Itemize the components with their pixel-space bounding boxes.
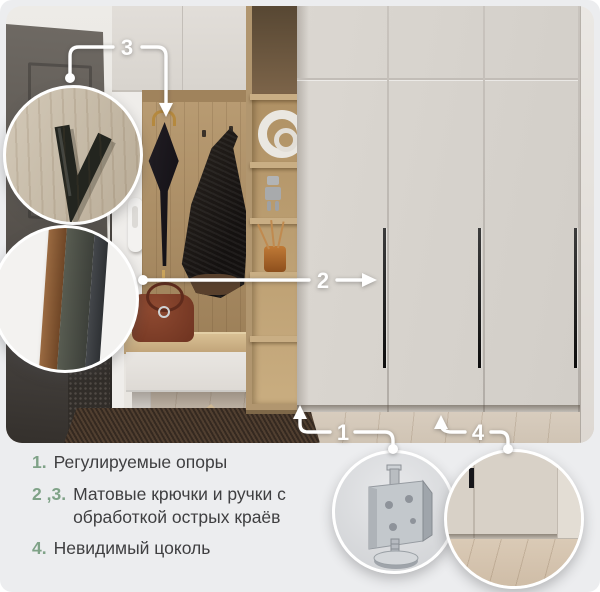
wood-soffit: [142, 90, 252, 102]
feature-list: 1. Регулируемые опоры 2 ,3. Матовые крюч…: [32, 451, 368, 569]
feature-text: Матовые крючки и ручки с обработкой остр…: [73, 483, 368, 529]
floor-strip: [447, 539, 581, 586]
feature-number: 2 ,3.: [32, 483, 66, 506]
robot-figurine-leg: [275, 201, 279, 211]
matte-hook-closeup: [3, 85, 143, 225]
reed-diffuser: [256, 228, 292, 272]
shelf-board: [250, 336, 300, 342]
wardrobe-door-seam: [387, 6, 389, 412]
wood-grain: [6, 88, 140, 222]
coat-hook: [202, 130, 206, 137]
feature-item-2-3: 2 ,3. Матовые крючки и ручки с обработко…: [32, 483, 368, 529]
panel-seam: [473, 452, 475, 538]
feature-number: 4.: [32, 537, 47, 560]
shelf-board: [250, 94, 300, 100]
robot-figurine-leg: [267, 201, 271, 211]
shelf-board: [250, 218, 300, 224]
coat-cuff: [188, 274, 239, 294]
feature-number: 1.: [32, 451, 47, 474]
wardrobe-door-seam: [483, 6, 485, 412]
hallway-photo: [6, 6, 594, 443]
feature-item-1: 1. Регулируемые опоры: [32, 451, 368, 474]
side-panel: [557, 452, 582, 538]
umbrella-tip: [162, 270, 165, 278]
cabinet-seam: [182, 6, 183, 90]
feature-item-4: 4. Невидимый цоколь: [32, 537, 368, 560]
handle-tip: [469, 468, 474, 488]
wardrobe-handle: [574, 228, 577, 368]
wardrobe-plinth-shadow: [297, 405, 580, 412]
feature-text: Невидимый цоколь: [54, 537, 211, 560]
side-wall: [580, 6, 594, 443]
shelf-board: [250, 162, 300, 168]
diffuser-bottle: [264, 246, 286, 272]
feature-text: Регулируемые опоры: [54, 451, 228, 474]
diffuser-stick: [257, 224, 270, 249]
wardrobe-edge-shadow: [297, 6, 309, 412]
shelf-board: [250, 272, 300, 278]
edge-profile-closeup: [0, 225, 139, 373]
wardrobe-front: [297, 6, 580, 412]
bag-charm: [158, 306, 170, 318]
top-cubby: [252, 6, 298, 94]
leather-bag: [132, 294, 194, 342]
wardrobe-handle: [478, 228, 481, 368]
robot-figurine-head: [267, 176, 279, 185]
infographic-card: 3 2 1 4 1. Регулируемые опоры 2 ,3. Мато…: [0, 0, 600, 592]
wardrobe-handle: [383, 228, 386, 368]
panel-edges: [0, 225, 139, 373]
invisible-plinth-closeup: [444, 449, 584, 589]
upper-cabinet: [112, 6, 252, 92]
robot-figurine-body: [265, 187, 281, 200]
open-shelf-column: [246, 6, 304, 414]
floor-planks: [447, 539, 581, 586]
wardrobe-horizontal-seam: [297, 78, 580, 80]
ring-vase-small: [274, 128, 298, 152]
